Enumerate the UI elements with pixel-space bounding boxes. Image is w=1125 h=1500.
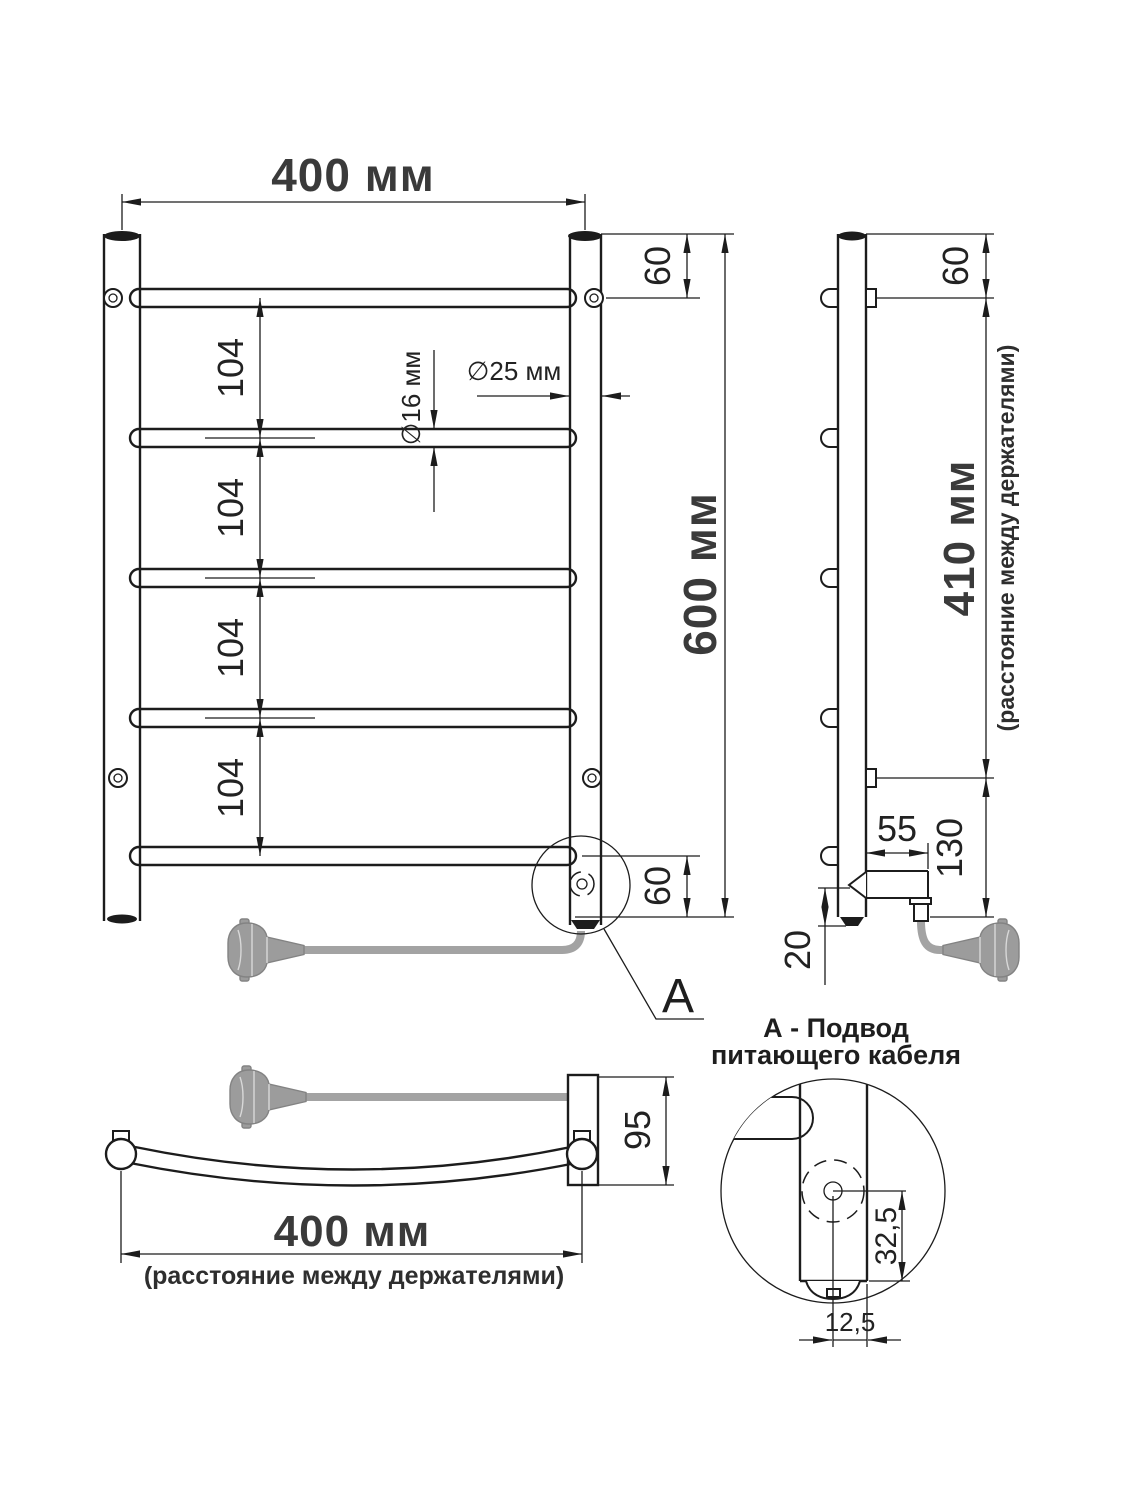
detail-marker-label: A: [662, 970, 694, 1023]
detail-content: [688, 1079, 867, 1299]
drawing-page: 400 мм 60 104 104 104 104 ∅16 мм: [0, 0, 1125, 1500]
front-bottom-gap-label: 60: [637, 866, 678, 906]
detail-title-line2: питающего кабеля: [711, 1040, 961, 1070]
front-top-gap-dimension: 60: [601, 234, 734, 298]
rail-diameter-label: ∅16 мм: [396, 351, 426, 446]
rung-gap-label-3: 104: [210, 618, 251, 678]
bracket-depth-label: 55: [877, 808, 917, 849]
holder-span-label: 410 мм: [935, 460, 984, 617]
power-plug: [228, 919, 304, 981]
front-width-label: 400 мм: [271, 149, 435, 201]
front-view: 400 мм 60 104 104 104 104 ∅16 мм: [104, 149, 734, 1023]
front-height-label: 600 мм: [674, 492, 726, 656]
front-width-dimension: 400 мм: [122, 149, 585, 230]
power-cable: [304, 931, 581, 950]
side-top-gap-label: 60: [935, 246, 976, 286]
post-diameter-label: ∅25 мм: [467, 356, 562, 386]
bottom-section-label: 130: [929, 818, 970, 878]
cable-gap-label: 20: [777, 930, 818, 970]
holder-span-dimension: 410 мм (расстояние между держателями): [876, 298, 1019, 778]
bowed-rail: [130, 1147, 576, 1186]
wall-brackets: [866, 289, 876, 787]
rung-gap-label-1: 104: [210, 338, 251, 398]
rung-gap-label-2: 104: [210, 478, 251, 538]
holder-span-note: (расстояние между держателями): [993, 345, 1019, 732]
detail-title-line1: А - Подвод: [763, 1013, 909, 1043]
hole-offset-label: 12,5: [825, 1307, 876, 1337]
side-top-gap-dimension: 60: [866, 234, 994, 298]
front-top-gap-label: 60: [637, 246, 678, 286]
post-diameter-dimension: ∅25 мм: [467, 356, 630, 396]
top-view: 95 400 мм (расстояние между держателями): [106, 1066, 674, 1290]
bracket-depth-dimension: 55: [866, 808, 928, 869]
technical-drawing: 400 мм 60 104 104 104 104 ∅16 мм: [0, 0, 1125, 1500]
side-view: 60 410 мм (расстояние между держателями)…: [777, 232, 1019, 986]
side-power-cable: [921, 921, 943, 950]
rung-gap-label-4: 104: [210, 758, 251, 818]
top-span-note: (расстояние между держателями): [144, 1262, 564, 1290]
top-span-dimension: 400 мм (расстояние между держателями): [121, 1171, 582, 1290]
depth-label: 95: [617, 1110, 658, 1150]
detail-view-a: А - Подвод питающего кабеля 32,5 12,5: [688, 1013, 961, 1347]
top-span-label: 400 мм: [274, 1207, 431, 1256]
depth-dimension: 95: [598, 1077, 674, 1185]
side-power-plug: [943, 919, 1019, 981]
rail-holders: [106, 1131, 597, 1169]
element-offset-dimension: 32,5: [833, 1191, 910, 1281]
element-offset-label: 32,5: [870, 1207, 903, 1265]
bottom-section-dimension: 130: [929, 778, 994, 917]
top-power-plug: [230, 1066, 306, 1128]
detail-rung-end: [688, 1097, 813, 1139]
